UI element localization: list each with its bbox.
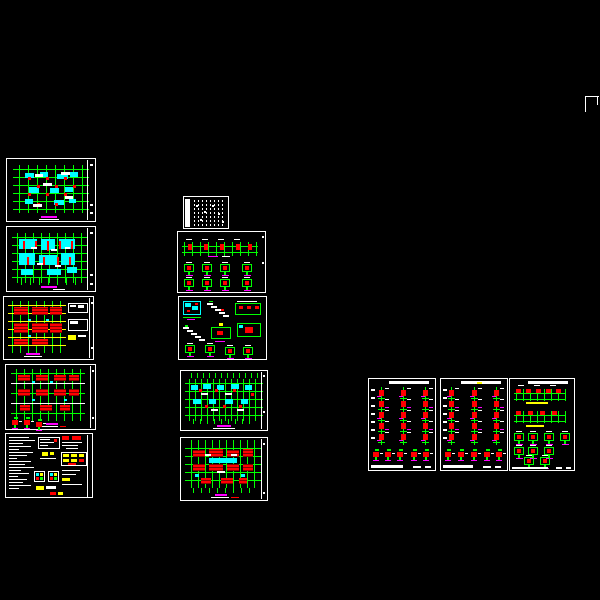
art (185, 325, 188, 327)
art (443, 405, 447, 407)
art (239, 325, 243, 328)
art (404, 453, 407, 454)
art (400, 431, 407, 432)
art (217, 471, 225, 473)
art (36, 389, 48, 396)
art (21, 269, 33, 275)
art (471, 398, 478, 399)
art (40, 477, 43, 480)
sheet-schedule-table[interactable] (183, 196, 229, 229)
art (429, 432, 433, 433)
art (470, 440, 474, 441)
art (547, 449, 551, 453)
art (470, 418, 474, 419)
art (187, 330, 193, 332)
art (484, 460, 490, 461)
art (247, 306, 251, 309)
art (25, 199, 33, 204)
art (217, 488, 218, 493)
art (380, 453, 383, 454)
art (64, 177, 67, 180)
art (371, 421, 375, 423)
art (470, 396, 474, 397)
art (239, 478, 247, 484)
art (90, 164, 93, 166)
art (82, 165, 83, 213)
sheet-corner-mark[interactable] (584, 95, 600, 113)
art (478, 432, 482, 433)
art (60, 405, 70, 411)
art (443, 429, 447, 431)
art (40, 439, 50, 440)
art (46, 423, 58, 425)
sheet-floor-plan-4[interactable] (180, 437, 268, 501)
art (53, 289, 65, 290)
art (204, 277, 210, 278)
art (492, 440, 496, 441)
art (186, 262, 192, 263)
art (448, 420, 455, 421)
art (46, 177, 49, 180)
art (241, 399, 248, 404)
art (531, 435, 535, 439)
art (66, 448, 78, 449)
art (371, 429, 375, 431)
art (191, 385, 198, 390)
art (211, 497, 229, 498)
art (566, 467, 571, 469)
art (565, 411, 566, 423)
art (71, 454, 77, 457)
art (478, 421, 482, 422)
art (79, 459, 84, 462)
art (209, 373, 210, 378)
art (483, 466, 491, 468)
art (204, 211, 206, 213)
art (399, 449, 403, 451)
art (526, 425, 544, 427)
art (223, 266, 227, 270)
art (196, 205, 198, 207)
art (12, 428, 18, 429)
art (551, 389, 552, 401)
art (255, 306, 259, 309)
art (401, 423, 406, 429)
art (227, 358, 234, 359)
art (392, 453, 395, 454)
art (213, 428, 235, 429)
art (225, 393, 232, 395)
sheet-floor-plan-1[interactable] (6, 158, 96, 222)
art (40, 405, 52, 411)
art (262, 262, 264, 264)
art (14, 417, 18, 419)
art (203, 373, 204, 378)
art (443, 397, 447, 399)
art (245, 385, 252, 390)
art (46, 319, 49, 321)
art (186, 275, 193, 276)
art (478, 399, 482, 400)
art (556, 389, 561, 393)
art (187, 356, 194, 357)
art (249, 419, 250, 424)
art (87, 435, 88, 497)
art (90, 212, 93, 214)
art (546, 389, 551, 393)
art (455, 432, 459, 433)
art (218, 239, 224, 240)
art (261, 372, 262, 429)
art (90, 204, 93, 206)
art (422, 431, 429, 432)
art (233, 488, 234, 493)
art (195, 303, 198, 305)
art (245, 373, 246, 378)
art (221, 478, 233, 484)
art (536, 389, 541, 393)
art (38, 419, 42, 421)
art (245, 358, 252, 359)
art (185, 391, 263, 392)
art (371, 389, 375, 391)
art (30, 277, 31, 285)
art (530, 445, 536, 446)
art (422, 442, 429, 443)
art (429, 410, 433, 411)
art (186, 290, 193, 291)
art (31, 247, 37, 249)
art (202, 239, 208, 240)
art (494, 401, 499, 407)
art (41, 286, 57, 288)
art (37, 263, 43, 265)
art (492, 418, 496, 419)
art (214, 419, 215, 424)
sheet-detail-sheet-1[interactable] (177, 231, 266, 293)
art (492, 396, 496, 397)
art (195, 474, 199, 477)
art (201, 478, 211, 484)
art (47, 241, 49, 251)
art (9, 440, 35, 441)
art (407, 432, 411, 433)
art (9, 446, 31, 447)
art (50, 473, 53, 476)
art (70, 172, 78, 177)
art (42, 426, 58, 427)
art (200, 242, 201, 256)
art (46, 193, 49, 196)
art (455, 410, 459, 411)
art (429, 421, 433, 422)
art (188, 347, 192, 351)
art (87, 228, 88, 290)
art (413, 449, 417, 451)
art (183, 317, 201, 318)
art (17, 233, 18, 283)
sheet-beam-elevation[interactable] (509, 378, 575, 471)
art (531, 449, 535, 453)
art (40, 473, 43, 476)
art (194, 200, 195, 226)
art (199, 389, 202, 392)
art (448, 442, 455, 443)
art (192, 306, 198, 310)
art (46, 486, 56, 489)
art (516, 445, 522, 446)
art (28, 319, 31, 321)
art (498, 449, 502, 451)
art (9, 464, 25, 465)
art (199, 339, 205, 341)
art (377, 396, 381, 397)
art (47, 269, 61, 275)
art (50, 381, 53, 383)
art (222, 290, 229, 291)
art (209, 301, 213, 302)
art (429, 399, 433, 400)
art (40, 458, 56, 459)
art (448, 431, 455, 432)
art (228, 419, 229, 424)
art (72, 436, 81, 440)
art (215, 494, 227, 496)
art (37, 185, 40, 188)
art (219, 312, 225, 314)
sheet-column-elevation-2[interactable] (440, 378, 508, 471)
art (207, 343, 213, 344)
art (528, 411, 533, 415)
sheet-slab-plan[interactable] (5, 364, 96, 430)
art (385, 410, 389, 411)
art (9, 458, 17, 459)
art (39, 219, 59, 220)
art (233, 373, 234, 378)
art (562, 444, 569, 445)
art (447, 449, 451, 451)
art (516, 389, 521, 393)
art (32, 339, 48, 345)
art (215, 373, 216, 378)
art (455, 399, 459, 400)
art (472, 401, 477, 407)
art (36, 486, 44, 490)
art (209, 458, 237, 463)
art (423, 460, 429, 461)
art (222, 221, 224, 223)
art (191, 333, 197, 335)
art (187, 343, 193, 344)
art (24, 356, 42, 357)
art (234, 239, 240, 240)
art (400, 398, 407, 399)
art (527, 459, 531, 463)
art (41, 216, 57, 218)
art (540, 411, 545, 415)
art (65, 187, 73, 192)
art (200, 219, 202, 221)
art (227, 464, 239, 471)
art (443, 437, 447, 439)
art (225, 399, 233, 404)
art (251, 373, 252, 378)
art (210, 200, 211, 226)
art (13, 209, 89, 210)
art (418, 453, 421, 454)
art (493, 431, 500, 432)
art (54, 439, 57, 442)
art (241, 474, 245, 477)
art (43, 257, 45, 265)
art (449, 401, 454, 407)
art (36, 375, 48, 381)
sheet-column-elevation-1[interactable] (368, 378, 436, 471)
art (449, 423, 454, 429)
art (248, 244, 252, 250)
art (455, 407, 459, 408)
art (50, 323, 62, 333)
art (186, 239, 192, 240)
art (471, 442, 478, 443)
art (500, 429, 504, 430)
sheet-floor-plan-3[interactable] (180, 370, 268, 431)
art (244, 262, 250, 263)
art (89, 298, 90, 358)
art (214, 200, 215, 226)
art (413, 466, 421, 468)
art (455, 388, 459, 389)
art (62, 470, 80, 471)
art (523, 411, 524, 423)
art (460, 449, 464, 451)
art (207, 303, 213, 305)
art (187, 281, 191, 285)
art (236, 244, 240, 250)
art (211, 306, 217, 308)
art (256, 242, 257, 256)
art (385, 421, 389, 422)
art (526, 455, 532, 456)
sheet-detail-sheet-2[interactable] (178, 296, 267, 360)
art (547, 435, 551, 439)
art (244, 277, 250, 278)
art (217, 331, 223, 335)
art (205, 266, 209, 270)
sheet-general-notes[interactable] (5, 433, 93, 498)
art (26, 417, 30, 419)
art (28, 177, 31, 180)
art (263, 375, 265, 377)
art (201, 488, 202, 493)
art (448, 398, 455, 399)
art (66, 277, 67, 285)
art (50, 188, 59, 193)
art (563, 435, 567, 439)
art (458, 460, 464, 461)
art (371, 397, 375, 399)
art (401, 401, 406, 407)
art (447, 418, 451, 419)
art (185, 199, 190, 227)
art (217, 425, 231, 427)
art (558, 411, 559, 423)
art (443, 421, 447, 423)
art (493, 398, 500, 399)
art (257, 373, 258, 378)
art (182, 252, 258, 253)
art (429, 407, 433, 408)
art (377, 418, 381, 419)
art (448, 409, 455, 410)
art (486, 449, 490, 451)
art (544, 389, 545, 401)
art (13, 169, 89, 170)
art (227, 345, 233, 346)
art (478, 410, 482, 411)
art (471, 420, 478, 421)
art (378, 409, 385, 410)
art (246, 349, 250, 353)
art (534, 385, 540, 386)
art (63, 459, 69, 462)
art (205, 454, 211, 456)
art (50, 477, 53, 480)
art (58, 492, 63, 495)
art (91, 302, 93, 304)
art (59, 241, 61, 249)
art (251, 393, 254, 396)
art (422, 420, 429, 421)
art (212, 205, 214, 207)
art (32, 381, 35, 383)
art (254, 444, 255, 488)
art (21, 277, 22, 285)
art (233, 389, 236, 392)
art (220, 244, 224, 250)
art (430, 453, 433, 454)
art (537, 411, 538, 423)
art (244, 290, 251, 291)
art (48, 277, 49, 285)
art (79, 454, 84, 457)
art (222, 275, 229, 276)
art (208, 256, 218, 257)
art (197, 373, 198, 378)
art (50, 307, 62, 315)
art (8, 305, 66, 306)
art (421, 440, 425, 441)
art (193, 399, 201, 404)
art (18, 375, 30, 381)
art (241, 488, 242, 493)
art (69, 375, 79, 381)
sheet-floor-plan-2[interactable] (6, 226, 96, 292)
art (465, 453, 468, 454)
sheet-beam-plan[interactable] (3, 296, 94, 360)
cad-canvas[interactable] (0, 0, 600, 600)
art (193, 419, 194, 424)
art (70, 321, 78, 324)
art (597, 97, 598, 105)
art (69, 389, 79, 396)
art (478, 429, 482, 430)
art (500, 399, 504, 400)
art (187, 319, 195, 320)
art (543, 459, 547, 463)
art (471, 431, 478, 432)
art (478, 407, 482, 408)
